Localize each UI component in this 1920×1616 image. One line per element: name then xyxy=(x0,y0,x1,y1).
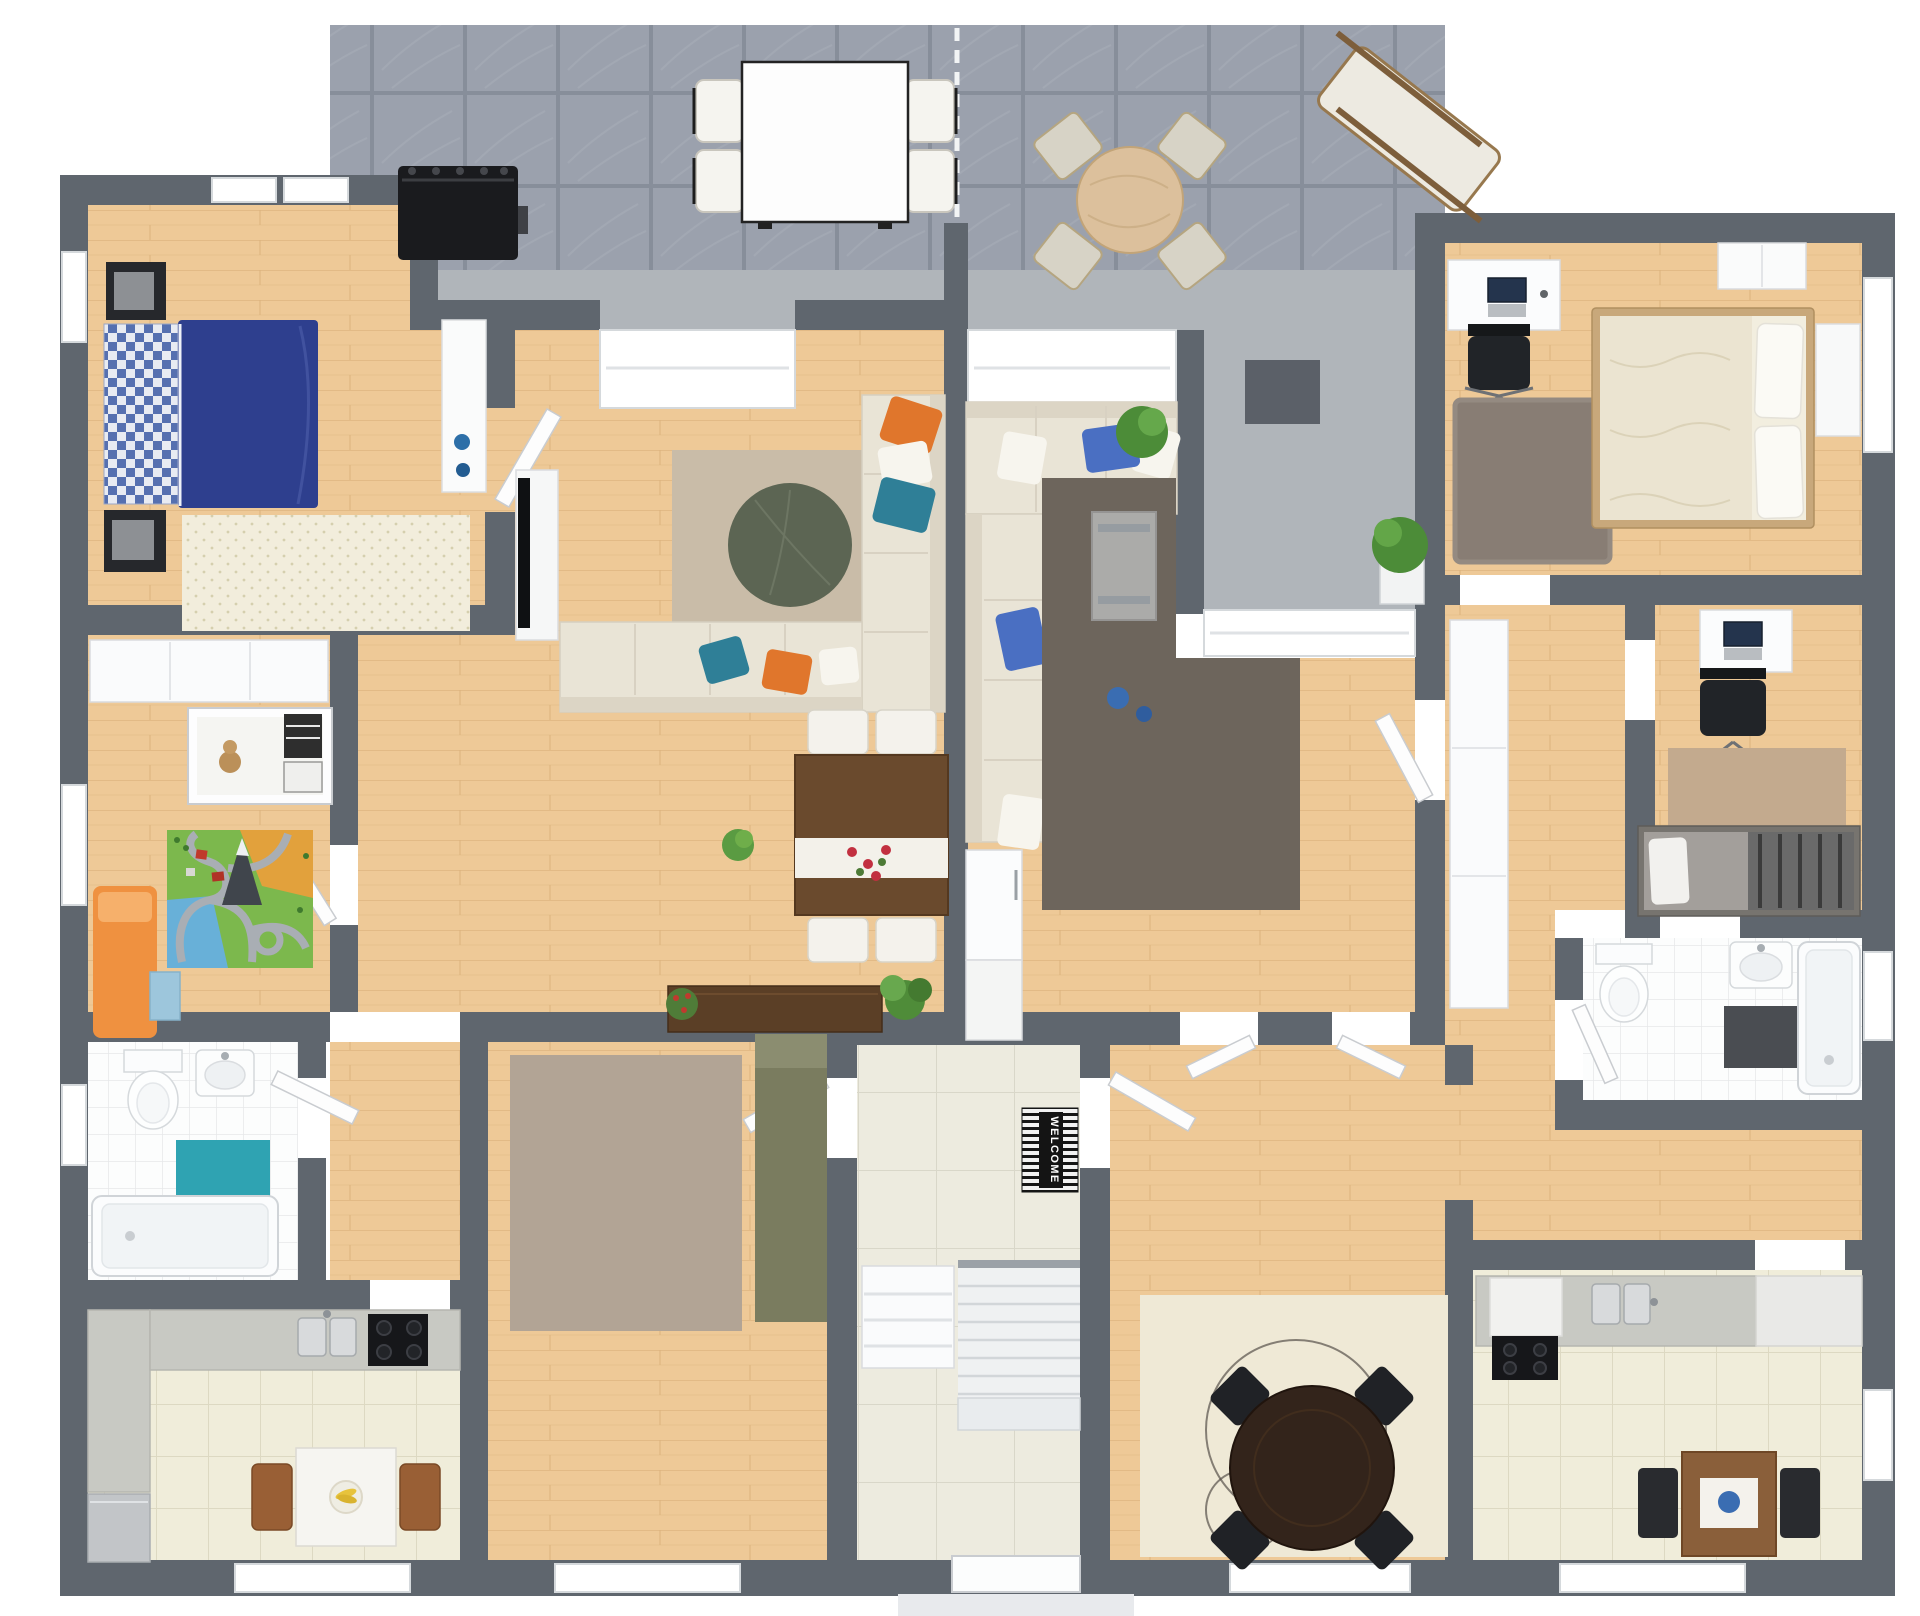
front-door xyxy=(952,1556,1080,1592)
kitchen-b-sink-basin xyxy=(1624,1284,1650,1324)
entry-shoe-shelf xyxy=(862,1266,954,1368)
floor-vestibule-a xyxy=(330,1042,460,1280)
bedroom-a2-daybed-cushion xyxy=(755,1034,827,1068)
bedroom-a-nightstand-bottom-cushion xyxy=(112,520,154,560)
bedroom-b1-shag-rug xyxy=(1455,400,1610,562)
bedroom-b1-bench xyxy=(1816,324,1860,436)
kitchen-a-burner xyxy=(407,1345,421,1359)
window-bedroom-b1-right xyxy=(1864,278,1892,452)
dining-a-flower-leaf xyxy=(878,858,886,866)
kitchen-b-cabinet-right xyxy=(1756,1276,1862,1346)
kitchen-b-chair xyxy=(1638,1468,1678,1538)
grill-knob xyxy=(500,167,508,175)
kitchen-b-faucet xyxy=(1650,1298,1658,1306)
wall-dining-b-right-upper xyxy=(1445,1045,1473,1085)
play-mat-tree xyxy=(303,853,309,859)
wall-right-block-top xyxy=(1415,213,1895,243)
porch-step xyxy=(898,1594,1134,1616)
floor-bathb-approach xyxy=(1555,1130,1862,1240)
welcome-mat-text: WELCOME xyxy=(1048,1116,1060,1183)
window-bathroom-b-right xyxy=(1864,952,1892,1040)
kitchen-b-burner xyxy=(1534,1362,1546,1374)
floor-hall-b2 xyxy=(1555,605,1625,910)
dining-a-chair xyxy=(808,918,868,962)
bathroom-a-mat-teal xyxy=(176,1140,270,1196)
wall-kitchen-a-top-east xyxy=(450,1280,460,1310)
terrace-chair-a xyxy=(906,150,954,212)
glass-coffee-table-bar xyxy=(1098,596,1150,604)
bathroom-b-tub-drain xyxy=(1824,1055,1834,1065)
wall-bedroom-b1-bottom-west xyxy=(1445,575,1460,605)
living-b-bowl-blue xyxy=(1107,687,1129,709)
window-kitchen-a-bottom xyxy=(235,1564,410,1592)
bedroom-a-rug xyxy=(182,515,470,631)
window-bedroom-a2-bottom xyxy=(555,1564,740,1592)
wall-entry-left-lower xyxy=(827,1158,857,1560)
floor-corridor-a xyxy=(358,635,515,1012)
dining-a-flower xyxy=(881,845,891,855)
living-a-rug-circle xyxy=(728,483,852,607)
kitchen-a-chair xyxy=(252,1464,292,1530)
window-kitchen-b-bottom xyxy=(1560,1564,1745,1592)
wall-dining-b-top-mid xyxy=(1258,1012,1332,1045)
bedroom-a-dresser-decor xyxy=(456,463,470,477)
terrace-chair-a xyxy=(696,150,744,212)
dining-a-chair xyxy=(876,710,936,754)
bedroom-b1-mouse xyxy=(1540,290,1548,298)
wall-living-b-right-upper xyxy=(1415,243,1445,700)
play-mat-house xyxy=(186,868,195,876)
wall-bathroom-a-right-lower xyxy=(298,1158,326,1280)
bedroom-a-nightstand-top-cushion xyxy=(114,272,154,310)
wall-kitchen-a-top-west xyxy=(60,1280,370,1310)
kitchen-b-burner xyxy=(1504,1362,1516,1374)
bathroom-a-tub-drain xyxy=(125,1231,135,1241)
terrace-outdoor-mat xyxy=(1245,360,1320,424)
living-b-plant-light xyxy=(1138,408,1166,436)
kitchen-b-bowl-blue xyxy=(1718,1491,1740,1513)
floor-plan-page: WELCOME xyxy=(0,0,1920,1616)
plant-small-a-light xyxy=(735,830,753,848)
kids-bed-pillow xyxy=(98,892,152,922)
kitchen-a-fridge xyxy=(88,1494,150,1562)
floor-plan-render-root: WELCOME xyxy=(60,25,1895,1616)
grill-knob xyxy=(480,167,488,175)
wall-terrace-l-west xyxy=(1176,330,1204,614)
crib-pillow-pattern xyxy=(284,762,322,792)
grill-knob xyxy=(432,167,440,175)
wall-entry-right-lower xyxy=(1080,1168,1110,1560)
dining-a-chair xyxy=(876,918,936,962)
wall-kitchen-b-top-west xyxy=(1445,1240,1755,1270)
fern-plant-a xyxy=(880,975,906,1001)
living-b-rug-main xyxy=(1042,658,1300,910)
bathroom-b-faucet xyxy=(1757,944,1765,952)
kitchen-b-cabinet xyxy=(1490,1278,1562,1336)
terrace-table-a xyxy=(742,62,908,222)
bedroom-b1-chair-seat xyxy=(1468,336,1530,390)
bedroom-b1-duvet xyxy=(1600,316,1752,520)
window-bedroom-a-2 xyxy=(284,178,348,202)
wall-bathroom-b-bottom xyxy=(1555,1100,1862,1130)
sideboard-a xyxy=(668,986,882,1032)
sofa-b-vertical-back xyxy=(966,514,982,842)
dining-a-flower xyxy=(863,859,873,869)
bedroom-b1-laptop-screen xyxy=(1488,278,1526,302)
sofa-b-pillow-white-2 xyxy=(996,431,1048,486)
office-b2-rug xyxy=(1668,748,1846,828)
bedroom-b1-laptop-keyboard xyxy=(1488,304,1526,317)
bedroom-a2-daybed xyxy=(755,1034,827,1322)
wall-bathroom-b-left-upper xyxy=(1555,938,1583,1000)
kitchen-b-sink-basin xyxy=(1592,1284,1620,1324)
teddy-bear-head xyxy=(223,740,237,754)
wall-living-a-top-east xyxy=(795,300,944,330)
bathroom-b-tub-inner xyxy=(1806,950,1852,1086)
office-b2-pillow xyxy=(1648,837,1689,905)
kitchen-a-counter-left xyxy=(88,1310,150,1492)
entry-stairs-landing xyxy=(958,1398,1080,1430)
kitchen-a-chair xyxy=(400,1464,440,1530)
wall-nursery-right-lower xyxy=(330,925,358,1012)
kitchen-a-sink-basin xyxy=(330,1318,356,1356)
bedroom-b1-pillow xyxy=(1754,323,1803,419)
living-b-bowl-blue xyxy=(1136,706,1152,722)
bedroom-a-bed-duvet xyxy=(178,320,318,508)
glass-coffee-table-bar xyxy=(1098,524,1150,532)
play-mat-house xyxy=(212,871,225,881)
entry-stairs-top-gap xyxy=(958,1260,1080,1268)
hall-b-wardrobe xyxy=(1450,620,1508,1008)
kitchen-a-sink-basin xyxy=(298,1318,326,1356)
terrace-round-table xyxy=(1077,147,1183,253)
bathroom-a-toilet-seat xyxy=(137,1083,169,1123)
tv-a xyxy=(518,478,530,628)
sofa-a-pillow-white-2 xyxy=(818,646,860,686)
teddy-bear-body xyxy=(219,751,241,773)
grill-knob xyxy=(456,167,464,175)
fern-plant-a xyxy=(908,978,932,1002)
dining-a-flower xyxy=(871,871,881,881)
living-b-fridge xyxy=(966,850,1022,960)
window-left-nursery xyxy=(62,785,86,905)
crib-blanket-dark xyxy=(284,714,322,758)
bathroom-b-sink-basin xyxy=(1740,953,1782,981)
office-b2-laptop-screen xyxy=(1724,622,1762,646)
dining-a-chair xyxy=(808,710,868,754)
wall-entry-left-upper xyxy=(827,1042,857,1078)
window-bedroom-a-1 xyxy=(212,178,276,202)
window-left-bedroom-a xyxy=(62,252,86,342)
bathroom-b-toilet-tank xyxy=(1596,944,1652,964)
bathroom-a-toilet-tank xyxy=(124,1050,182,1072)
office-b2-chair-back xyxy=(1700,668,1766,679)
wall-living-b-right-lower xyxy=(1415,800,1445,1012)
kitchen-b-burner xyxy=(1504,1344,1516,1356)
kitchen-a-burner xyxy=(377,1345,391,1359)
kitchen-a-burner xyxy=(377,1321,391,1335)
wall-nursery-right-upper xyxy=(330,635,358,845)
sideboard-plant-red-base xyxy=(666,988,698,1020)
kitchen-a-faucet xyxy=(323,1310,331,1318)
dining-a-flower xyxy=(847,847,857,857)
play-mat-tree xyxy=(297,907,303,913)
bedroom-b1-chair-back xyxy=(1468,324,1530,336)
dining-a-flower-leaf xyxy=(856,868,864,876)
terrace-plant-light xyxy=(1374,519,1402,547)
kitchen-b-burner xyxy=(1534,1344,1546,1356)
play-mat-house xyxy=(195,849,207,859)
play-mat-tree xyxy=(183,845,189,851)
wall-bedroom-b1-bottom-east xyxy=(1550,575,1862,605)
bathroom-b-toilet-seat xyxy=(1609,978,1639,1016)
wall-entry-right-upper xyxy=(1080,1045,1110,1078)
wall-living-a-top-west xyxy=(410,300,600,330)
wall-terrace-stub xyxy=(944,223,968,330)
kitchen-b-cooktop xyxy=(1492,1336,1558,1380)
wall-kitchen-b-top-east xyxy=(1845,1240,1862,1270)
window-left-bathroom-a xyxy=(62,1085,86,1165)
nursery-wardrobe xyxy=(90,640,328,702)
sofa-b-pillow-white-3 xyxy=(997,793,1046,850)
bathroom-a-faucet xyxy=(221,1052,229,1060)
window-kitchen-b-right xyxy=(1864,1390,1892,1480)
bedroom-a2-rug xyxy=(510,1055,742,1331)
wall-dining-b-top-east xyxy=(1410,1012,1445,1045)
wall-living-a-left-lower xyxy=(485,512,515,635)
sideboard-plant-red-flower xyxy=(685,993,691,999)
terrace-chair-a xyxy=(906,80,954,142)
sideboard-plant-red-flower xyxy=(681,1007,687,1013)
kitchen-b-chair xyxy=(1780,1468,1820,1538)
sofa-a-pillow-orange-2 xyxy=(761,648,813,695)
bedroom-b1-pillow xyxy=(1754,425,1803,519)
dining-a-table xyxy=(795,755,948,915)
dining-a-runner xyxy=(795,838,948,878)
kids-storage-box xyxy=(150,972,180,1020)
grill-knob xyxy=(408,167,416,175)
bedroom-a-bed-pillows xyxy=(104,324,178,504)
grill-side-shelf xyxy=(518,206,528,234)
sideboard-plant-red-flower xyxy=(673,995,679,1001)
bedroom-a-dresser-decor xyxy=(454,434,470,450)
wall-bathroom-a-right-upper xyxy=(298,1042,326,1078)
wall-bedroom-a2-left xyxy=(460,1042,488,1560)
wall-hall-b-right-upper xyxy=(1625,605,1655,640)
living-b-counter xyxy=(966,960,1022,1040)
office-b2-chair-seat xyxy=(1700,680,1766,736)
play-mat-tree xyxy=(174,837,180,843)
bathroom-a-sink-basin xyxy=(205,1061,245,1089)
wall-living-a-left-upper xyxy=(485,330,515,408)
floor-plan-svg: WELCOME xyxy=(0,0,1920,1616)
kitchen-a-burner xyxy=(407,1321,421,1335)
terrace-chair-a xyxy=(696,80,744,142)
office-b2-laptop-keyboard xyxy=(1724,648,1762,660)
